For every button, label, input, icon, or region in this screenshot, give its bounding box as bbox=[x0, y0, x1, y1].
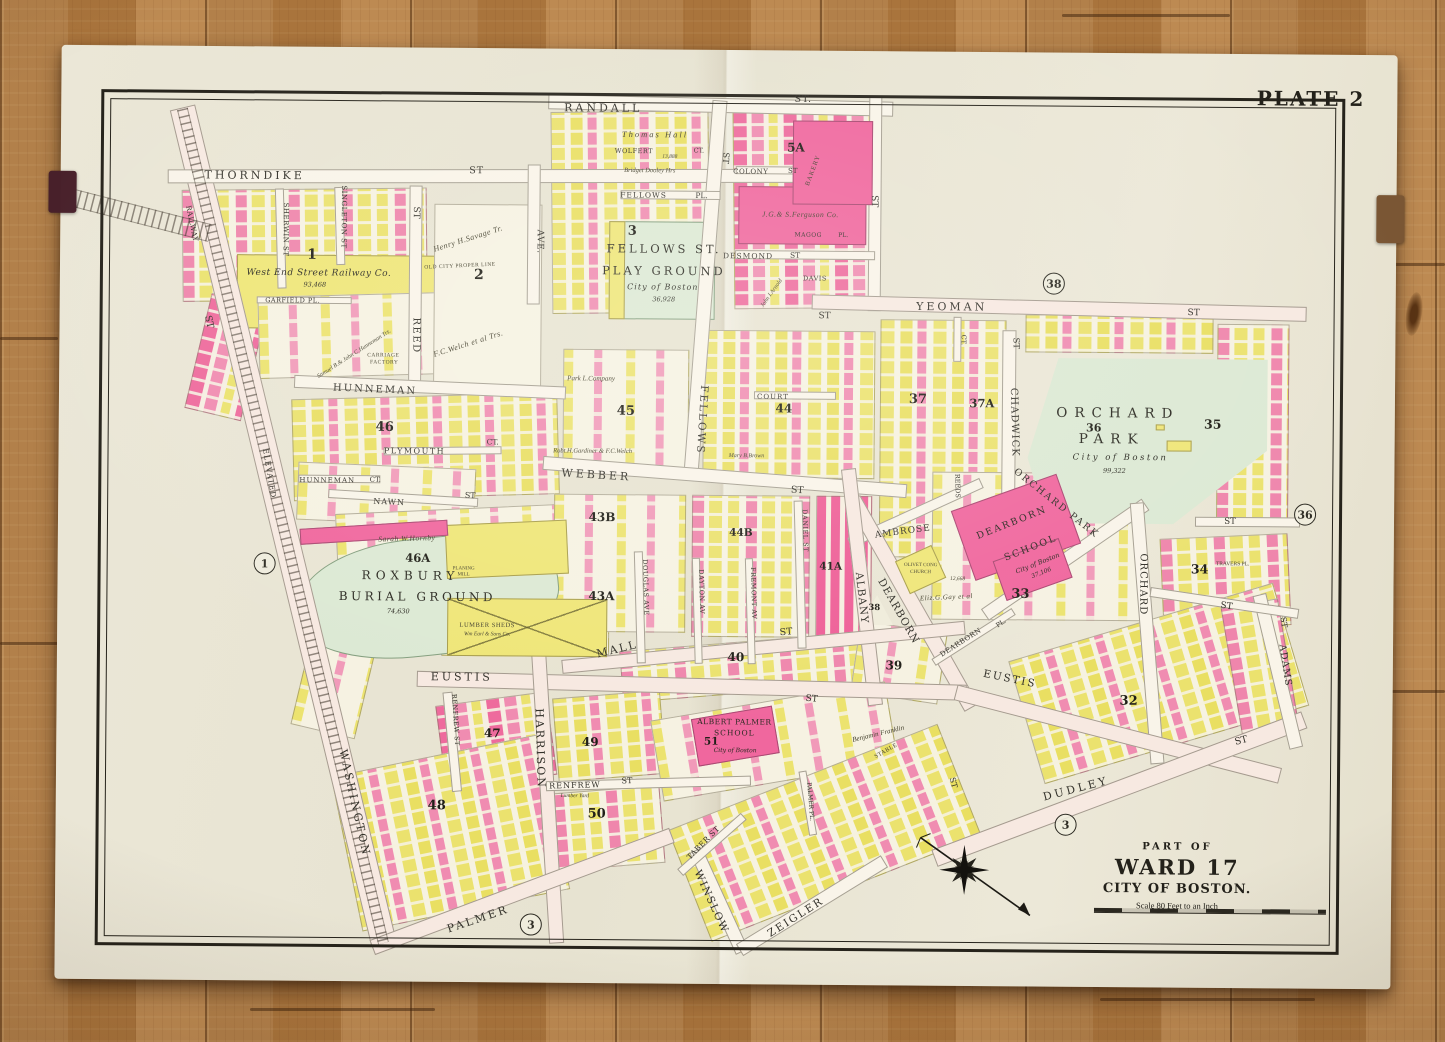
map-note-lumber-yard: Lumber Yard bbox=[561, 794, 590, 800]
street-label-garfield-pl: GARFIELD PL. bbox=[265, 297, 320, 304]
map-note-carriage: CARRIAGE bbox=[367, 353, 399, 359]
map-note-12-668: 12,668 bbox=[950, 577, 965, 583]
street-label-dayton-av: DAYTON AV bbox=[698, 569, 706, 614]
binder-tab-right bbox=[1376, 195, 1404, 243]
street-label-eustis: EUSTIS bbox=[431, 671, 493, 682]
street-label-yeoman: YEOMAN bbox=[916, 301, 987, 313]
block-number-44b: 44B bbox=[729, 528, 753, 539]
block-number-40: 40 bbox=[728, 651, 745, 663]
street-label-ct: CT. bbox=[487, 438, 499, 446]
street-label-court: COURT bbox=[757, 394, 789, 401]
block-number-44: 44 bbox=[775, 402, 792, 414]
street-label-st: ST bbox=[1220, 602, 1233, 613]
map-note-robt-h-gardiner-f-c-welch: Robt.H.Gardiner & F.C.Welch bbox=[553, 448, 632, 455]
block-number-43b: 43B bbox=[589, 511, 616, 523]
place-label-play-ground: PLAY GROUND bbox=[602, 265, 726, 277]
map-note-13-888: 13,888 bbox=[662, 155, 677, 161]
street-label-webber: WEBBER bbox=[561, 467, 631, 482]
map-note-henry-h-savage-tr: Henry H.Savage Tr. bbox=[433, 224, 504, 253]
map-note-park-l-company: Park L.Company bbox=[567, 375, 615, 382]
map-note-sarah-w-hornby: Sarah W.Hornby bbox=[378, 534, 435, 543]
block-number-2: 2 bbox=[474, 268, 484, 282]
map-note-lumber-sheds: LUMBER SHEDS bbox=[459, 623, 514, 630]
map-note-stable: STABLE bbox=[874, 742, 899, 760]
street-label-pl: PL. bbox=[838, 233, 848, 239]
street-label-singleton-st: SINGLETON ST bbox=[340, 185, 347, 248]
street-label-nawn: NAWN bbox=[373, 498, 405, 507]
street-label-st: ST bbox=[720, 152, 729, 164]
street-label-hunneman: HUNNEMAN bbox=[333, 383, 418, 397]
block-number-34: 34 bbox=[1191, 563, 1209, 576]
street-label-ct: CT. bbox=[960, 335, 967, 345]
street-label-st: ST bbox=[465, 492, 476, 500]
map-note-thomas-hall: Thomas Hall bbox=[622, 130, 688, 139]
street-label-albany: ALBANY bbox=[853, 572, 869, 625]
street-label-railway: RAILWAY bbox=[184, 205, 198, 243]
street-label-adams: ADAMS bbox=[1277, 644, 1293, 688]
block-number-1: 1 bbox=[307, 248, 317, 262]
block-number-32: 32 bbox=[1119, 695, 1137, 708]
map-note-bridget-dooley-hrs: Bridget Dooley Hrs bbox=[624, 168, 675, 175]
street-label-dearborn: DEARBORN bbox=[939, 627, 983, 658]
block-number-46a: 46A bbox=[405, 553, 430, 565]
street-label-st: ST bbox=[790, 252, 800, 260]
map-note-john-i-arnold: John I.Arnold bbox=[760, 278, 784, 309]
place-label-city-of-boston: City of Boston bbox=[1073, 453, 1169, 462]
street-label-dudley: DUDLEY bbox=[1042, 775, 1110, 803]
map-note-mill: MILL bbox=[457, 572, 469, 577]
place-label-93-468: 93,468 bbox=[303, 281, 326, 288]
street-label-st: ST bbox=[1011, 337, 1020, 349]
street-label-st: ST bbox=[805, 695, 818, 705]
place-label-school: SCHOOL bbox=[714, 729, 755, 737]
map-labels-layer: RANDALLST.THORNDIKESTFELLOWSPL.COLONYSTD… bbox=[0, 0, 1445, 1042]
photo-scene: PLATE 2 PART OF WARD 17 CITY OF BOSTON. … bbox=[0, 0, 1445, 1042]
street-label-st: ST bbox=[779, 627, 793, 637]
plate-ref-circled-3: 3 bbox=[1055, 814, 1077, 836]
place-label-city-of-boston: City of Boston bbox=[714, 748, 757, 754]
street-label-st: ST bbox=[469, 166, 484, 176]
block-number-33: 33 bbox=[1011, 588, 1029, 601]
street-label-reeds: REEDS bbox=[954, 474, 961, 498]
street-label-sherwin-st: SHERWIN ST bbox=[282, 203, 289, 257]
street-label-palmer: PALMER bbox=[446, 904, 510, 935]
block-number-47: 47 bbox=[484, 727, 501, 739]
street-label-ct: CT. bbox=[370, 477, 381, 484]
block-number-51: 51 bbox=[704, 737, 719, 748]
place-label-orchard: ORCHARD bbox=[1056, 407, 1179, 421]
map-note-wm-earl-sons-co: Wm Earl & Sons Co. bbox=[464, 632, 510, 638]
street-label-orchard-park: ORCHARD PARK bbox=[1012, 467, 1101, 540]
street-label-palmer-pl: PALMER PL. bbox=[805, 782, 814, 821]
block-number-48: 48 bbox=[428, 799, 446, 812]
place-label-burial-ground: BURIAL GROUND bbox=[339, 590, 496, 603]
street-label-renfrew: RENFREW bbox=[549, 781, 601, 790]
street-label-dearborn: DEARBORN bbox=[876, 577, 921, 646]
block-number-35: 35 bbox=[1204, 419, 1222, 432]
plate-ref-circled-36: 36 bbox=[1294, 503, 1316, 525]
street-label-pl: PL. bbox=[695, 192, 707, 200]
block-number-37: 37 bbox=[909, 393, 927, 406]
map-note-olivet-cong: OLIVET CONG bbox=[904, 563, 937, 568]
map-note-eliz-g-gay-et-al: Eliz.G.Gay et al bbox=[920, 593, 973, 602]
street-label-daniel-st: DANIEL ST bbox=[801, 509, 809, 552]
street-label-colony: COLONY bbox=[733, 169, 768, 176]
street-label-st: ST bbox=[869, 195, 878, 207]
street-label-harrison: HARRISON bbox=[534, 708, 547, 789]
map-note-f-c-welch-et-al-trs: F.C.Welch et al Trs. bbox=[433, 329, 505, 359]
place-label-park: PARK bbox=[1079, 433, 1145, 447]
street-label-st: ST bbox=[621, 777, 632, 785]
place-label-west-end-street-railway-co: West End Street Railway Co. bbox=[247, 269, 392, 279]
block-number-3: 3 bbox=[628, 225, 637, 238]
street-label-ave: AVE. bbox=[535, 230, 544, 254]
block-number-50: 50 bbox=[588, 807, 606, 820]
block-number-38: 38 bbox=[868, 604, 880, 613]
block-number-46: 46 bbox=[376, 421, 394, 434]
place-label-roxbury: ROXBURY bbox=[362, 569, 460, 582]
street-label-st: ST bbox=[788, 168, 798, 175]
place-label-74-630: 74,630 bbox=[387, 608, 410, 615]
map-note-j-g-s-ferguson-co: J.G.& S.Ferguson Co. bbox=[762, 211, 839, 219]
place-label-albert-palmer: ALBERT PALMER bbox=[697, 718, 771, 726]
street-label-wolfert: WOLFERT bbox=[615, 148, 653, 155]
street-label-taber-st: TABER ST bbox=[686, 825, 722, 861]
street-label-fremont-av: FREMONT AV bbox=[749, 567, 757, 619]
street-label-davis: DAVIS bbox=[803, 275, 827, 282]
place-label-city-of-boston: City of Boston bbox=[627, 283, 698, 292]
street-label-hunneman: HUNNEMAN bbox=[299, 477, 355, 484]
place-label-36-928: 36,928 bbox=[652, 296, 675, 303]
street-label-eustis: EUSTIS bbox=[982, 669, 1037, 690]
block-number-41a: 41A bbox=[819, 562, 842, 573]
street-label-st: ST bbox=[948, 777, 958, 789]
map-note-travers-pl: TRAVERS PL. bbox=[1216, 562, 1250, 568]
map-note-planing: PLANING bbox=[453, 566, 475, 571]
street-label-st: ST bbox=[791, 485, 804, 495]
map-note-mary-b-brown: Mary B.Brown bbox=[729, 453, 764, 459]
street-label-st: ST bbox=[1188, 309, 1200, 318]
street-label-ambrose: AMBROSE bbox=[874, 524, 931, 540]
street-label-st: ST bbox=[1278, 616, 1288, 628]
street-label-desmond: DESMOND bbox=[723, 252, 773, 260]
map-note-old-city-proper-line: OLD CITY PROPER LINE bbox=[424, 263, 496, 272]
place-label-fellows-st: FELLOWS ST. bbox=[607, 243, 722, 255]
street-label-mall: MALL bbox=[595, 639, 638, 659]
plate-ref-circled-1: 1 bbox=[254, 552, 276, 574]
street-label-douglas-ave: DOUGLAS AVE bbox=[641, 559, 649, 615]
street-label-ct: CT. bbox=[694, 148, 704, 155]
street-label-st: ST bbox=[203, 315, 215, 330]
block-number-5a: 5A bbox=[787, 141, 805, 153]
street-label-plymouth: PLYMOUTH bbox=[384, 447, 445, 455]
binder-tab-left bbox=[48, 171, 76, 213]
street-label-orchard: ORCHARD bbox=[1137, 553, 1147, 615]
block-number-43a: 43A bbox=[588, 590, 614, 602]
block-number-39: 39 bbox=[885, 659, 902, 671]
street-label-renfrew-st: RENFREW ST bbox=[451, 694, 461, 746]
map-sheet-tilt-wrap: PLATE 2 PART OF WARD 17 CITY OF BOSTON. … bbox=[0, 0, 1445, 1042]
street-label-st: ST bbox=[1234, 735, 1249, 747]
map-note-factory: FACTORY bbox=[370, 360, 398, 366]
place-label-99-322: 99,322 bbox=[1103, 468, 1126, 475]
street-label-thorndike: THORNDIKE bbox=[205, 169, 305, 181]
plate-ref-circled-38: 38 bbox=[1043, 273, 1065, 295]
street-label-chadwick: CHADWICK bbox=[1008, 388, 1020, 457]
street-label-st: ST bbox=[411, 206, 420, 218]
block-number-37a: 37A bbox=[969, 398, 994, 410]
map-note-benjamin-franklin: Benjamin Franklin bbox=[852, 725, 905, 744]
map-note-bakery: BAKERY bbox=[805, 154, 822, 187]
plate-ref-circled-3: 3 bbox=[520, 913, 542, 935]
street-label-washington: WASHINGTON bbox=[337, 748, 372, 857]
block-number-45: 45 bbox=[617, 405, 635, 418]
street-label-randall: RANDALL bbox=[564, 102, 642, 114]
street-label-pl: PL. bbox=[995, 618, 1008, 629]
street-label-st: ST bbox=[818, 312, 830, 321]
street-label-magog: MAGOG bbox=[794, 233, 822, 239]
street-label-reed: REED bbox=[410, 317, 420, 353]
street-label-winslow: WINSLOW bbox=[692, 869, 730, 935]
street-label-zeigler: ZEIGLER bbox=[766, 896, 826, 939]
map-note-church: CHURCH bbox=[910, 570, 931, 575]
place-label-dearborn: DEARBORN bbox=[975, 505, 1048, 541]
street-label-st: ST bbox=[1224, 518, 1236, 527]
street-label-elevated: ELEVATED bbox=[261, 448, 277, 499]
street-label-st: ST. bbox=[795, 95, 813, 105]
street-label-fellows: FELLOWS bbox=[694, 385, 709, 455]
block-number-49: 49 bbox=[582, 736, 599, 748]
street-label-fellows: FELLOWS bbox=[620, 191, 667, 199]
